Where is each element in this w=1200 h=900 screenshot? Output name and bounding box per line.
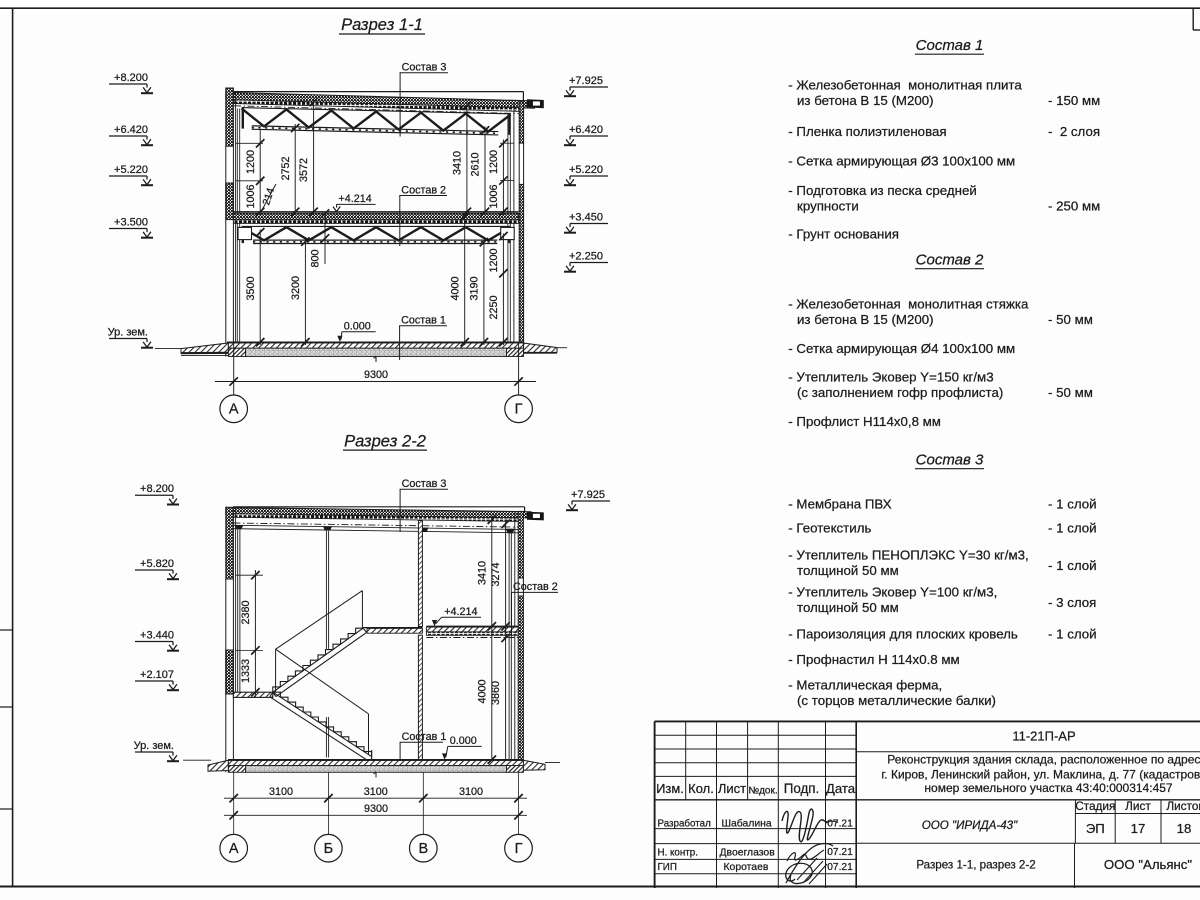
- svg-text:3410: 3410: [476, 561, 488, 585]
- svg-text:+3.500: +3.500: [114, 216, 148, 228]
- svg-text:- Профлист Н114х0,8 мм: - Профлист Н114х0,8 мм: [788, 414, 941, 429]
- svg-text:Г: Г: [515, 402, 523, 418]
- svg-text:номер земельного участка 43:40: номер земельного участка 43:40:000314:45…: [924, 781, 1173, 795]
- svg-text:Ур. зем.: Ур. зем.: [134, 740, 174, 752]
- svg-text:3860: 3860: [490, 681, 502, 705]
- svg-text:Состав 2: Состав 2: [916, 252, 984, 269]
- svg-text:3572: 3572: [298, 158, 310, 182]
- svg-text:Разрез 1-1: Разрез 1-1: [341, 16, 423, 34]
- svg-text:07.21: 07.21: [827, 847, 853, 858]
- svg-text:- Металлическая ферма,: - Металлическая ферма,: [788, 678, 942, 693]
- svg-text:- Сетка армирующая Ø4 100х100: - Сетка армирующая Ø4 100х100 мм: [788, 341, 1015, 356]
- svg-text:+5.820: +5.820: [140, 558, 174, 570]
- svg-text:17: 17: [1131, 821, 1146, 836]
- svg-text:- Мембрана ПВХ: - Мембрана ПВХ: [788, 497, 891, 512]
- svg-text:+7.925: +7.925: [569, 75, 603, 87]
- svg-text:- 1 слой: - 1 слой: [1048, 521, 1097, 536]
- svg-text:- Утеплитель Эковер Y=150 кг/м: - Утеплитель Эковер Y=150 кг/м3: [788, 370, 993, 385]
- svg-text:Коротаев: Коротаев: [724, 862, 769, 873]
- svg-text:№док.: №док.: [748, 785, 777, 796]
- svg-text:- 1 слой: - 1 слой: [1048, 627, 1097, 642]
- svg-text:1200: 1200: [245, 150, 257, 174]
- svg-text:Разработал: Разработал: [658, 818, 712, 829]
- svg-text:3190: 3190: [469, 276, 481, 300]
- svg-text:+6.420: +6.420: [569, 124, 603, 136]
- svg-text:Б: Б: [324, 841, 334, 857]
- svg-text:Подп.: Подп.: [784, 781, 820, 796]
- svg-text:- Сетка армирующая Ø3 100х100: - Сетка армирующая Ø3 100х100 мм: [788, 154, 1015, 169]
- svg-text:- Железобетонная монолитная п: - Железобетонная монолитная плита: [788, 78, 1022, 93]
- svg-text:Разрез 2-2: Разрез 2-2: [344, 432, 426, 450]
- svg-text:0.000: 0.000: [344, 321, 371, 333]
- svg-text:ООО "Альянс": ООО "Альянс": [1104, 857, 1192, 872]
- svg-text:- 50 мм: - 50 мм: [1048, 312, 1093, 327]
- svg-text:- Подготовка из песка средней: - Подготовка из песка средней: [788, 183, 977, 198]
- svg-text:Стадия: Стадия: [1075, 799, 1115, 813]
- svg-text:(с заполнением гофр профлиста): (с заполнением гофр профлиста): [797, 385, 1003, 400]
- svg-text:+5.220: +5.220: [114, 164, 148, 176]
- svg-text:07.21: 07.21: [827, 819, 853, 830]
- svg-text:Разрез 1-1, разрез 2-2: Разрез 1-1, разрез 2-2: [916, 859, 1035, 872]
- svg-text:Г: Г: [515, 841, 523, 857]
- svg-text:9300: 9300: [364, 369, 388, 381]
- svg-text:0.000: 0.000: [450, 735, 477, 747]
- svg-text:ООО "ИРИДА-43": ООО "ИРИДА-43": [922, 819, 1018, 832]
- svg-text:- Утеплитель Эковер Y=100 кг/м: - Утеплитель Эковер Y=100 кг/м3,: [788, 585, 997, 600]
- svg-text:+4.214: +4.214: [338, 193, 371, 205]
- svg-text:1333: 1333: [240, 659, 252, 683]
- svg-text:- Пленка полиэтиленовая: - Пленка полиэтиленовая: [788, 124, 946, 139]
- svg-text:толщиной 50 мм: толщиной 50 мм: [797, 600, 899, 615]
- svg-text:Реконструкция здания склада, р: Реконструкция здания склада, расположенн…: [887, 753, 1200, 767]
- svg-text:18: 18: [1177, 821, 1192, 836]
- svg-text:г. Киров, Ленинский район, ул.: г. Киров, Ленинский район, ул. Маклина, …: [881, 768, 1200, 782]
- svg-text:+8.200: +8.200: [114, 72, 148, 84]
- svg-text:Лист: Лист: [718, 781, 746, 796]
- svg-text:4000: 4000: [476, 679, 488, 703]
- svg-text:Состав 2: Состав 2: [513, 581, 558, 593]
- svg-text:Листов: Листов: [1166, 799, 1200, 813]
- svg-text:Состав 1: Состав 1: [402, 731, 447, 743]
- svg-text:В: В: [418, 841, 428, 857]
- svg-text:800: 800: [310, 249, 322, 267]
- svg-text:Кол.: Кол.: [688, 781, 714, 796]
- svg-text:Состав 1: Состав 1: [401, 315, 446, 327]
- svg-text:+4.214: +4.214: [444, 606, 477, 618]
- svg-text:Изм.: Изм.: [656, 781, 684, 796]
- svg-text:из бетона В 15 (М200): из бетона В 15 (М200): [797, 93, 934, 108]
- svg-text:Шабалина: Шабалина: [722, 818, 772, 830]
- svg-text:- Геотекстиль: - Геотекстиль: [788, 521, 871, 536]
- svg-text:+5.220: +5.220: [569, 164, 603, 176]
- svg-text:(с торцов металлические балки): (с торцов металлические балки): [797, 693, 996, 708]
- svg-text:А: А: [229, 841, 239, 857]
- svg-text:+2.107: +2.107: [140, 669, 174, 681]
- svg-text:Состав 1: Состав 1: [916, 37, 984, 54]
- svg-text:+6.420: +6.420: [114, 124, 148, 136]
- svg-text:- Пароизоляция для плоских кро: - Пароизоляция для плоских кровель: [788, 627, 1018, 642]
- svg-text:+7.925: +7.925: [571, 489, 605, 501]
- svg-text:3100: 3100: [459, 786, 483, 798]
- svg-text:+2.250: +2.250: [569, 250, 603, 262]
- svg-text:1200: 1200: [488, 248, 500, 272]
- svg-text:- 1 слой: - 1 слой: [1048, 497, 1097, 512]
- svg-text:Лист: Лист: [1125, 799, 1151, 813]
- svg-text:11-21П-АР: 11-21П-АР: [1012, 729, 1075, 744]
- svg-text:- 150 мм: - 150 мм: [1048, 93, 1100, 108]
- svg-text:А: А: [229, 402, 239, 418]
- svg-text:Состав 3: Состав 3: [916, 452, 984, 469]
- svg-text:- 3 слоя: - 3 слоя: [1048, 595, 1096, 610]
- svg-text:Н. контр.: Н. контр.: [658, 847, 698, 858]
- svg-text:+3.450: +3.450: [569, 211, 603, 223]
- svg-text:- 2 слоя: - 2 слоя: [1048, 124, 1100, 139]
- svg-text:3500: 3500: [245, 276, 257, 300]
- svg-text:Ур. зем.: Ур. зем.: [108, 326, 148, 338]
- svg-text:2610: 2610: [470, 152, 482, 176]
- svg-text:+3.440: +3.440: [140, 629, 174, 641]
- svg-text:+8.200: +8.200: [140, 483, 174, 495]
- svg-text:Состав 2: Состав 2: [401, 184, 446, 196]
- svg-text:3100: 3100: [364, 786, 388, 798]
- svg-text:Состав 3: Состав 3: [402, 478, 447, 490]
- svg-text:1200: 1200: [488, 150, 500, 174]
- svg-text:2250: 2250: [488, 295, 500, 319]
- svg-text:- Железобетонная монолитная с: - Железобетонная монолитная стяжка: [788, 297, 1029, 312]
- svg-text:из бетона В 15 (М200): из бетона В 15 (М200): [797, 312, 934, 327]
- svg-text:Состав 3: Состав 3: [402, 62, 447, 74]
- svg-text:крупности: крупности: [797, 198, 859, 213]
- svg-text:3100: 3100: [269, 786, 293, 798]
- svg-text:- 250 мм: - 250 мм: [1048, 198, 1100, 213]
- svg-text:- Утеплитель ПЕНОПЛЭКС Y=30 кг: - Утеплитель ПЕНОПЛЭКС Y=30 кг/м3,: [788, 548, 1028, 563]
- svg-text:- Грунт основания: - Грунт основания: [788, 227, 899, 242]
- svg-text:ЭП: ЭП: [1086, 821, 1105, 836]
- svg-text:ГИП: ГИП: [658, 862, 677, 873]
- svg-text:Дата: Дата: [826, 781, 856, 796]
- svg-text:2380: 2380: [240, 600, 252, 624]
- svg-text:3274: 3274: [490, 562, 502, 586]
- svg-text:1006: 1006: [245, 184, 257, 208]
- svg-text:1006: 1006: [488, 184, 500, 208]
- svg-text:07.21: 07.21: [827, 862, 853, 873]
- svg-text:3410: 3410: [452, 151, 464, 175]
- svg-text:3200: 3200: [290, 276, 302, 300]
- svg-text:толщиной 50 мм: толщиной 50 мм: [797, 563, 899, 578]
- svg-text:- 50 мм: - 50 мм: [1048, 385, 1093, 400]
- svg-text:Двоеглазов: Двоеглазов: [720, 848, 776, 859]
- svg-text:- 1 слой: - 1 слой: [1048, 558, 1097, 573]
- svg-text:- Профнастил Н 114х0.8 мм: - Профнастил Н 114х0.8 мм: [788, 652, 959, 667]
- svg-text:9300: 9300: [364, 803, 388, 815]
- svg-text:2752: 2752: [280, 156, 292, 180]
- svg-text:4000: 4000: [449, 276, 461, 300]
